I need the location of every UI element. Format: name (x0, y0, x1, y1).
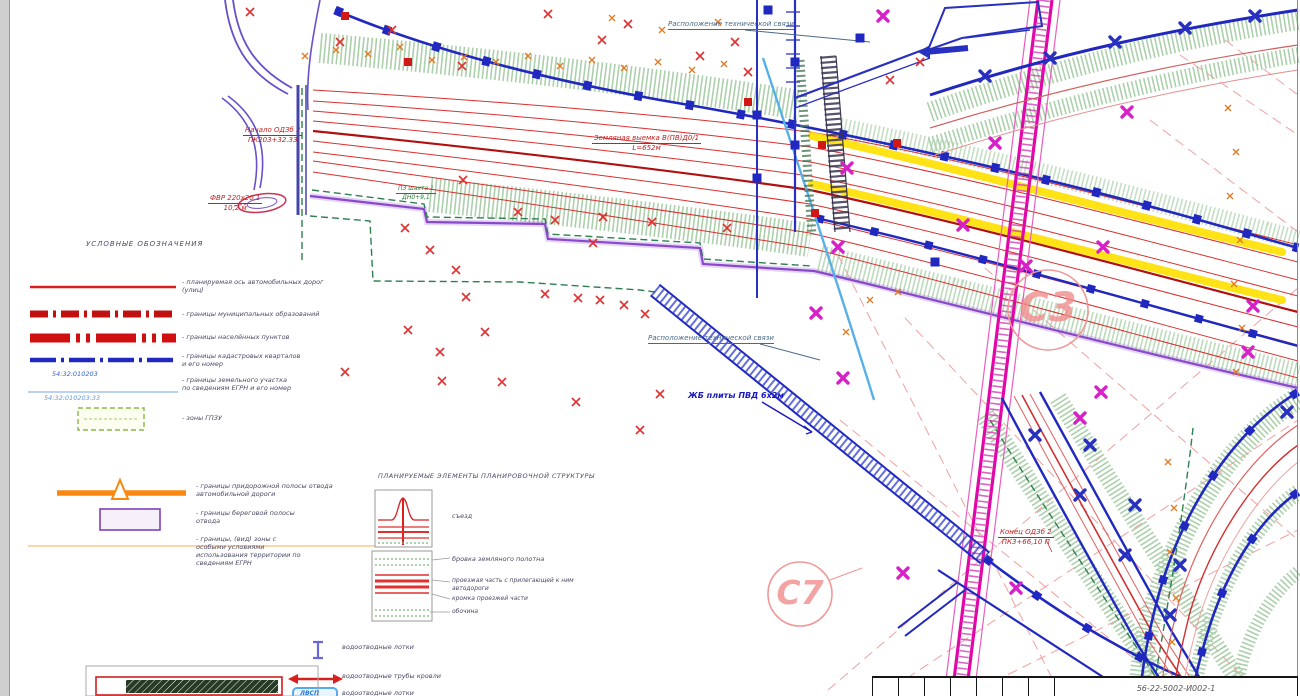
station-start-name: Начало ОДЗб 2 (243, 126, 302, 136)
title-block-cell (1003, 678, 1029, 696)
legend-symbols-title: УСЛОВНЫЕ ОБОЗНАЧЕНИЯ (86, 240, 203, 249)
legend-item-roadside-strip: - границы придорожной полосы отводаавтом… (196, 482, 333, 498)
drawing-sheet: Расположение технической связи Расположе… (0, 0, 1300, 696)
cadastral-quarter-number: 54:32:010203 (52, 370, 98, 378)
station-end-chainage: ПК3+66,10 П (1002, 538, 1050, 546)
culvert-name: ФВР 220х20,1 (208, 194, 262, 204)
legend-item-special-zone: - границы, (вид) зоны сособыми условиями… (196, 535, 301, 568)
road-axis-lines (313, 90, 1298, 378)
plan-drawing-canvas (0, 0, 1300, 696)
title-block-cell (899, 678, 925, 696)
legend-planning-title: ПЛАНИРУЕМЫЕ ЭЛЕМЕНТЫ ПЛАНИРОВОЧНОЙ СТРУК… (378, 472, 595, 480)
north-ramp (930, 10, 1298, 155)
callout-embankment-edge: бровка земляного полотна (452, 555, 544, 563)
sheet-margin-strip (0, 0, 10, 696)
legend-item-settlement-boundary: - границы населённых пунктов (182, 333, 289, 341)
legend-item-drain-trays-2: водоотводные лотки (342, 689, 414, 696)
legend-item-road-axis: - планируемая ось автомобильных дорог(ул… (182, 278, 324, 294)
title-block-cell (872, 678, 899, 696)
note-utility-location-mid: Расположение технической связи (648, 334, 774, 344)
excavation-length: L=652м (632, 144, 660, 152)
zone-label-c3: C3 (1019, 285, 1076, 331)
shaft-name: ПЗ шахта 1 (396, 185, 436, 194)
title-block: 56-22-5002-И002-1 (872, 676, 1298, 696)
excavation-label: Земляная выемка В(ПВ)Д0/1 L=652м (592, 134, 701, 153)
note-utility-location-top: Расположение технической связи (668, 20, 794, 30)
legend-item-exit: съезд (452, 512, 472, 520)
station-start-label: Начало ОДЗб 2 ПК203+32.33 (243, 126, 302, 145)
excavation-name: Земляная выемка В(ПВ)Д0/1 (592, 134, 701, 144)
title-block-cell (925, 678, 951, 696)
legend-item-cadastral-quarter: - границы кадастровых кварталови его ном… (182, 352, 300, 368)
cadastral-parcel-number: 54:32:010203:33 (44, 394, 100, 402)
title-block-cell (951, 678, 977, 696)
callout-carriageway: проезжая часть с прилегающей к ним автод… (452, 577, 612, 592)
station-end-name: Конец ОДЗб 2 (998, 528, 1054, 538)
drainage-channel (651, 285, 1230, 696)
ramp-curves (222, 0, 320, 215)
legend-item-gpzu-zone: - зоны ГПЗУ (182, 414, 222, 422)
junction-structures (795, 2, 1042, 108)
callout-shoulder: обочина (452, 608, 478, 616)
title-block-cell (977, 678, 1003, 696)
shaft-chainage: ДН0+9,1 (402, 194, 430, 201)
drain-box-code: ЛВСП (300, 690, 319, 696)
shaft-label: ПЗ шахта 1 ДН0+9,1 (396, 185, 436, 201)
title-block-cell (1029, 678, 1055, 696)
legend-item-drain-pipes: водоотводные трубы кровли (342, 672, 441, 680)
legend-item-shore-strip: - границы береговой полосыотвода (196, 509, 295, 525)
title-block-doc-cell: 56-22-5002-И002-1 (1055, 678, 1298, 696)
legend-item-drain-trays: водоотводные лотки (342, 643, 414, 651)
slabs-label: ЖБ плиты ПВД 6х2м (688, 391, 784, 401)
legend-item-municipal-boundary: - границы муниципальных образований (182, 310, 319, 318)
station-start-chainage: ПК203+32.33 (248, 136, 298, 144)
culvert-length: 10,2 м (224, 204, 247, 212)
callout-carriageway-edge: кромка проезжей части (452, 595, 528, 603)
culvert-label: ФВР 220х20,1 10,2 м (208, 194, 262, 213)
station-end-label: Конец ОДЗб 2 ПК3+66,10 П (998, 528, 1054, 547)
cyan-utility-line (763, 58, 874, 400)
document-number: 56-22-5002-И002-1 (1137, 684, 1216, 693)
sheet-frame-right (1297, 0, 1298, 696)
legend-item-parcel: - границы земельного участкапо сведениям… (182, 376, 291, 392)
zone-label-c7: C7 (776, 573, 823, 612)
